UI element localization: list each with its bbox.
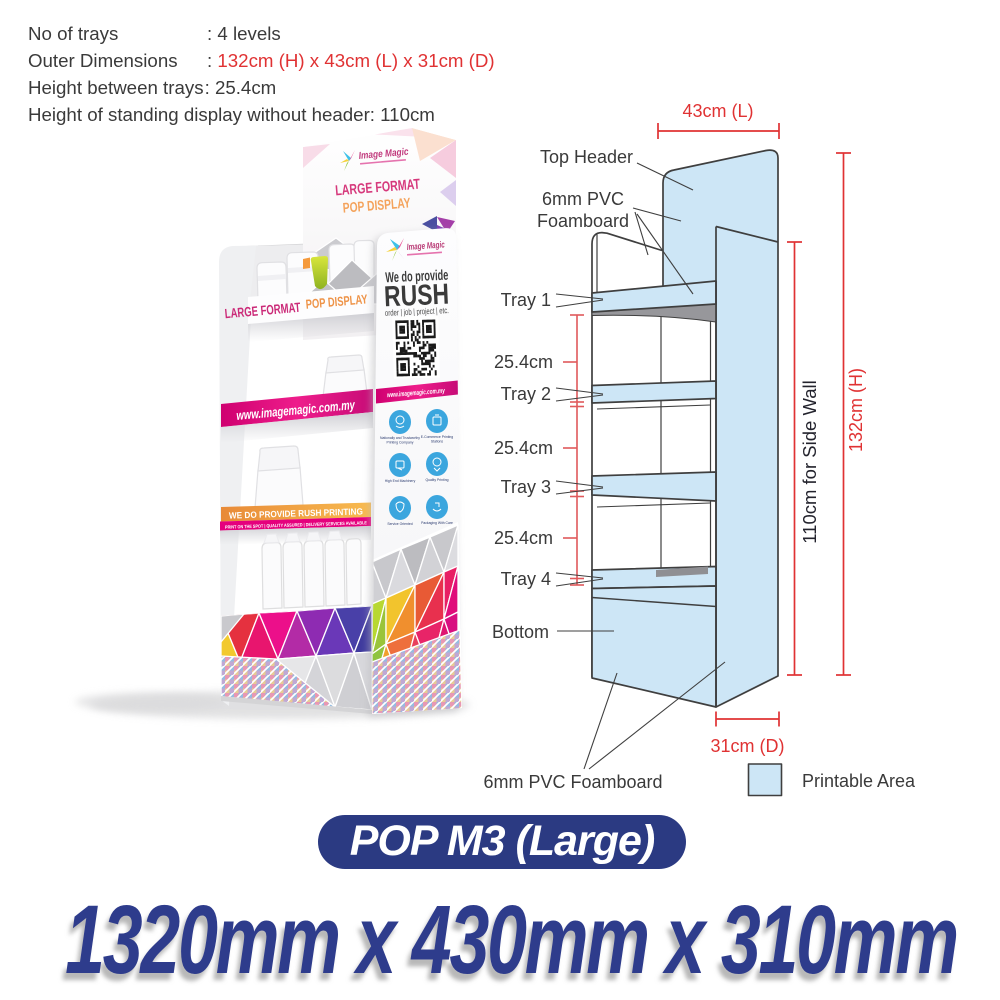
svg-text:25.4cm: 25.4cm	[494, 528, 553, 548]
svg-text:Quality Printing: Quality Printing	[426, 478, 449, 482]
svg-text:6mm PVC Foamboard: 6mm PVC Foamboard	[483, 772, 662, 792]
svg-text:Top Header: Top Header	[540, 147, 633, 167]
svg-text:E-Commerce Printing: E-Commerce Printing	[421, 435, 454, 439]
svg-text:Printable Area: Printable Area	[802, 771, 916, 791]
svg-text:6mm PVC: 6mm PVC	[542, 189, 624, 209]
svg-text:110cm for Side Wall: 110cm for Side Wall	[799, 380, 820, 543]
svg-text:31cm (D): 31cm (D)	[710, 736, 784, 756]
svg-text:43cm (L): 43cm (L)	[682, 101, 753, 121]
svg-text:Bottom: Bottom	[492, 622, 549, 642]
svg-text:Tray 1: Tray 1	[501, 290, 551, 310]
svg-text:High End Machinery: High End Machinery	[385, 479, 416, 483]
svg-text:Service Oriented: Service Oriented	[387, 522, 412, 526]
svg-text:25.4cm: 25.4cm	[494, 352, 553, 372]
svg-text:Packaging With Care: Packaging With Care	[421, 521, 453, 525]
svg-text:Stations: Stations	[431, 440, 444, 444]
svg-text:Printing Company: Printing Company	[387, 441, 414, 445]
svg-text:Tray 3: Tray 3	[501, 477, 551, 497]
svg-text:132cm (H): 132cm (H)	[846, 368, 866, 452]
svg-text:25.4cm: 25.4cm	[494, 438, 553, 458]
svg-text:Tray 4: Tray 4	[501, 569, 551, 589]
svg-text:Tray 2: Tray 2	[501, 384, 551, 404]
svg-text:Foamboard: Foamboard	[537, 211, 629, 231]
svg-text:Nationally and Trustworthy: Nationally and Trustworthy	[380, 436, 420, 440]
